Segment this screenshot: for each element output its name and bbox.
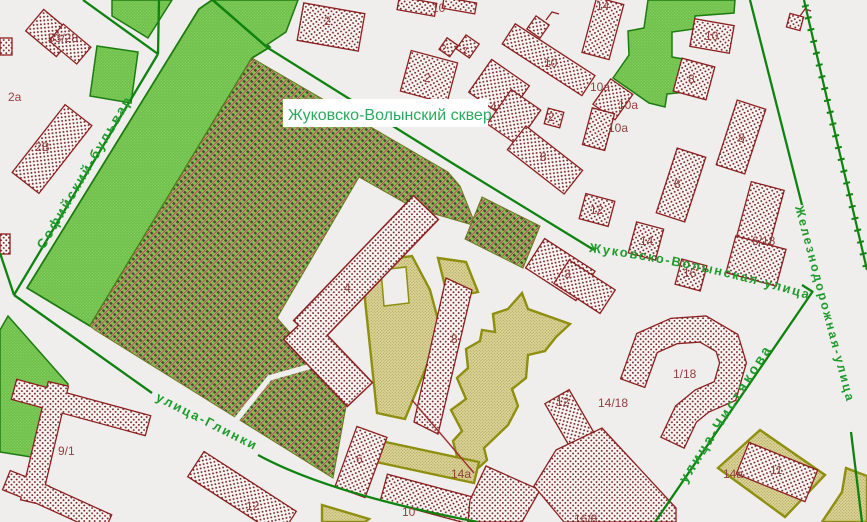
svg-text:10а: 10а [618, 98, 638, 112]
svg-text:9/1: 9/1 [58, 444, 75, 458]
svg-text:12: 12 [556, 395, 570, 409]
svg-text:16: 16 [683, 266, 697, 280]
svg-text:2а: 2а [8, 90, 22, 104]
svg-text:2: 2 [548, 110, 555, 124]
svg-text:14а: 14а [451, 467, 471, 481]
svg-text:8: 8 [688, 72, 695, 86]
svg-text:8: 8 [738, 131, 745, 145]
svg-text:10а: 10а [590, 80, 610, 94]
svg-text:53/28: 53/28 [48, 31, 78, 45]
svg-text:6: 6 [356, 452, 363, 466]
svg-text:1/18: 1/18 [673, 367, 697, 381]
svg-text:10: 10 [432, 1, 446, 15]
svg-text:4: 4 [490, 100, 497, 114]
svg-text:12: 12 [590, 203, 604, 217]
svg-text:16/8: 16/8 [574, 512, 598, 522]
svg-text:10: 10 [544, 56, 558, 70]
svg-text:2: 2 [324, 14, 331, 28]
svg-text:2: 2 [462, 46, 468, 57]
svg-text:4: 4 [344, 281, 351, 295]
svg-text:2: 2 [441, 44, 447, 55]
svg-text:8: 8 [540, 150, 547, 164]
svg-text:8: 8 [674, 177, 681, 191]
svg-text:12: 12 [246, 499, 260, 513]
svg-text:14а: 14а [723, 467, 743, 481]
svg-text:10а: 10а [608, 121, 628, 135]
svg-text:8: 8 [451, 332, 458, 346]
svg-text:6/18: 6/18 [752, 234, 776, 248]
svg-text:2В: 2В [35, 140, 50, 154]
svg-text:14: 14 [596, 0, 610, 13]
svg-text:14/18: 14/18 [598, 396, 628, 410]
svg-text:14: 14 [640, 234, 654, 248]
svg-text:2: 2 [424, 71, 431, 85]
svg-text:11: 11 [770, 463, 783, 477]
svg-text:10: 10 [705, 29, 719, 43]
svg-text:Жуковско-Волынский сквер: Жуковско-Волынский сквер [288, 107, 492, 124]
svg-text:10: 10 [402, 505, 416, 519]
svg-text:3: 3 [564, 267, 571, 281]
